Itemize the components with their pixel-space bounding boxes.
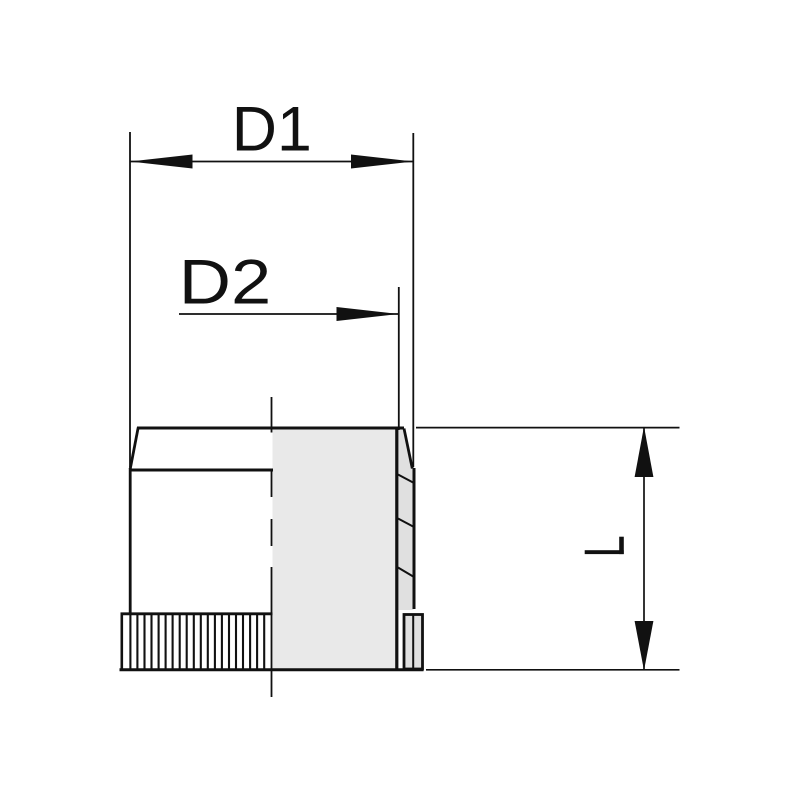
- svg-text:D2: D2: [179, 248, 271, 318]
- svg-text:D1: D1: [232, 95, 312, 165]
